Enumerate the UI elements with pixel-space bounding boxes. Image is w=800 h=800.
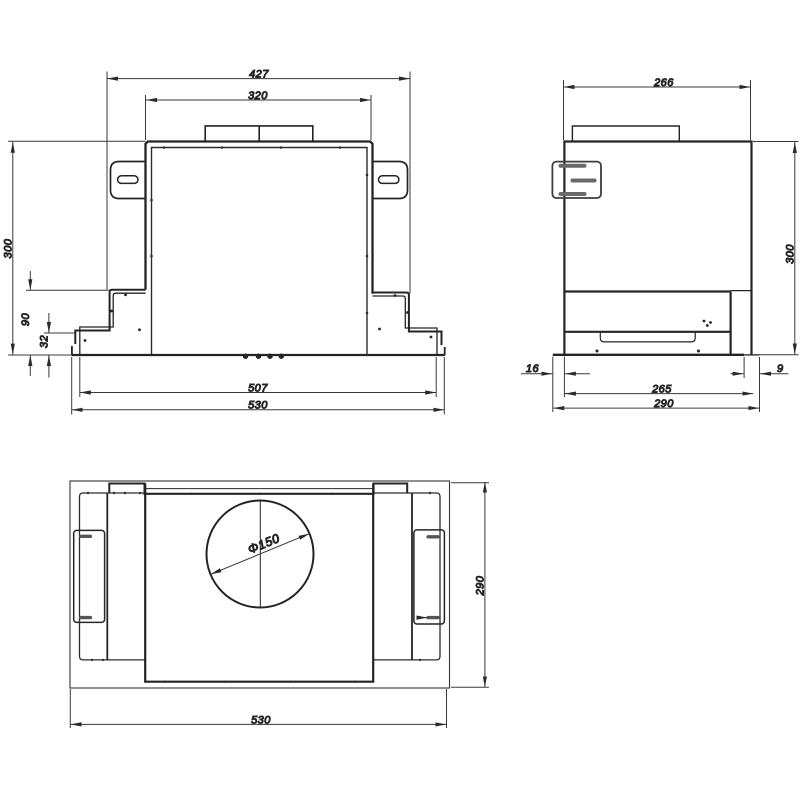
svg-text:32: 32	[39, 335, 51, 348]
svg-text:90: 90	[20, 313, 32, 327]
svg-text:300: 300	[3, 238, 15, 258]
svg-text:9: 9	[777, 363, 783, 375]
svg-text:300: 300	[784, 244, 796, 264]
svg-text:320: 320	[248, 90, 268, 102]
svg-text:16: 16	[526, 363, 540, 375]
svg-text:266: 266	[653, 77, 674, 89]
svg-text:290: 290	[474, 575, 486, 596]
svg-text:290: 290	[653, 398, 674, 410]
svg-text:265: 265	[651, 384, 672, 396]
svg-text:427: 427	[249, 69, 269, 81]
svg-text:507: 507	[248, 382, 268, 394]
svg-text:530: 530	[251, 714, 271, 726]
svg-text:530: 530	[248, 400, 268, 412]
